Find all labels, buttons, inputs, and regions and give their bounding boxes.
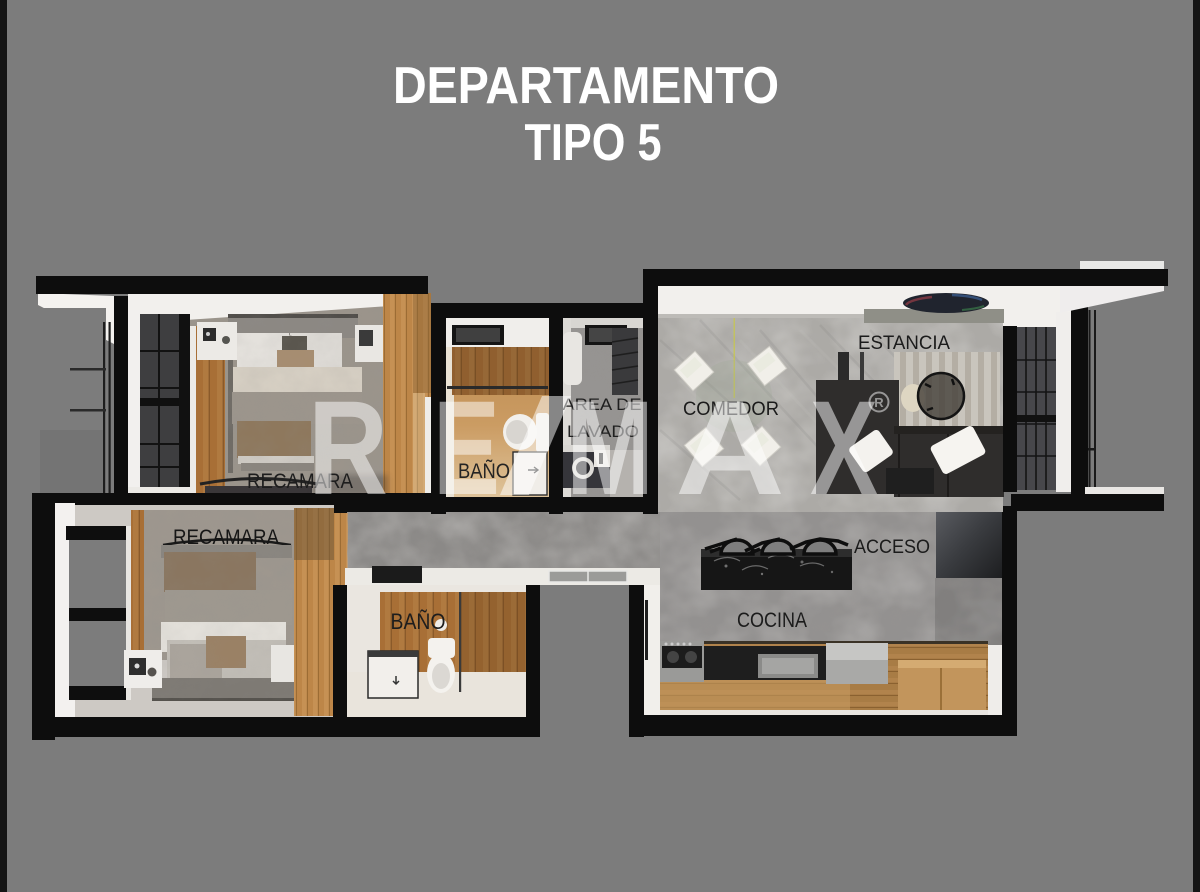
svg-text:R: R [308,374,388,523]
svg-text:BAÑO: BAÑO [391,609,446,634]
svg-text:A: A [675,374,785,523]
svg-text:DEPARTAMENTO: DEPARTAMENTO [393,57,779,115]
svg-text:ACCESO: ACCESO [854,537,930,558]
svg-text:TIPO 5: TIPO 5 [525,114,662,172]
svg-text:X: X [810,374,878,523]
svg-text:ESTANCIA: ESTANCIA [858,333,950,354]
svg-text:E: E [433,374,500,523]
svg-text:RECAMARA: RECAMARA [173,526,279,549]
svg-text:M: M [566,374,654,523]
svg-text:COCINA: COCINA [737,609,807,632]
svg-text:R: R [874,395,884,410]
